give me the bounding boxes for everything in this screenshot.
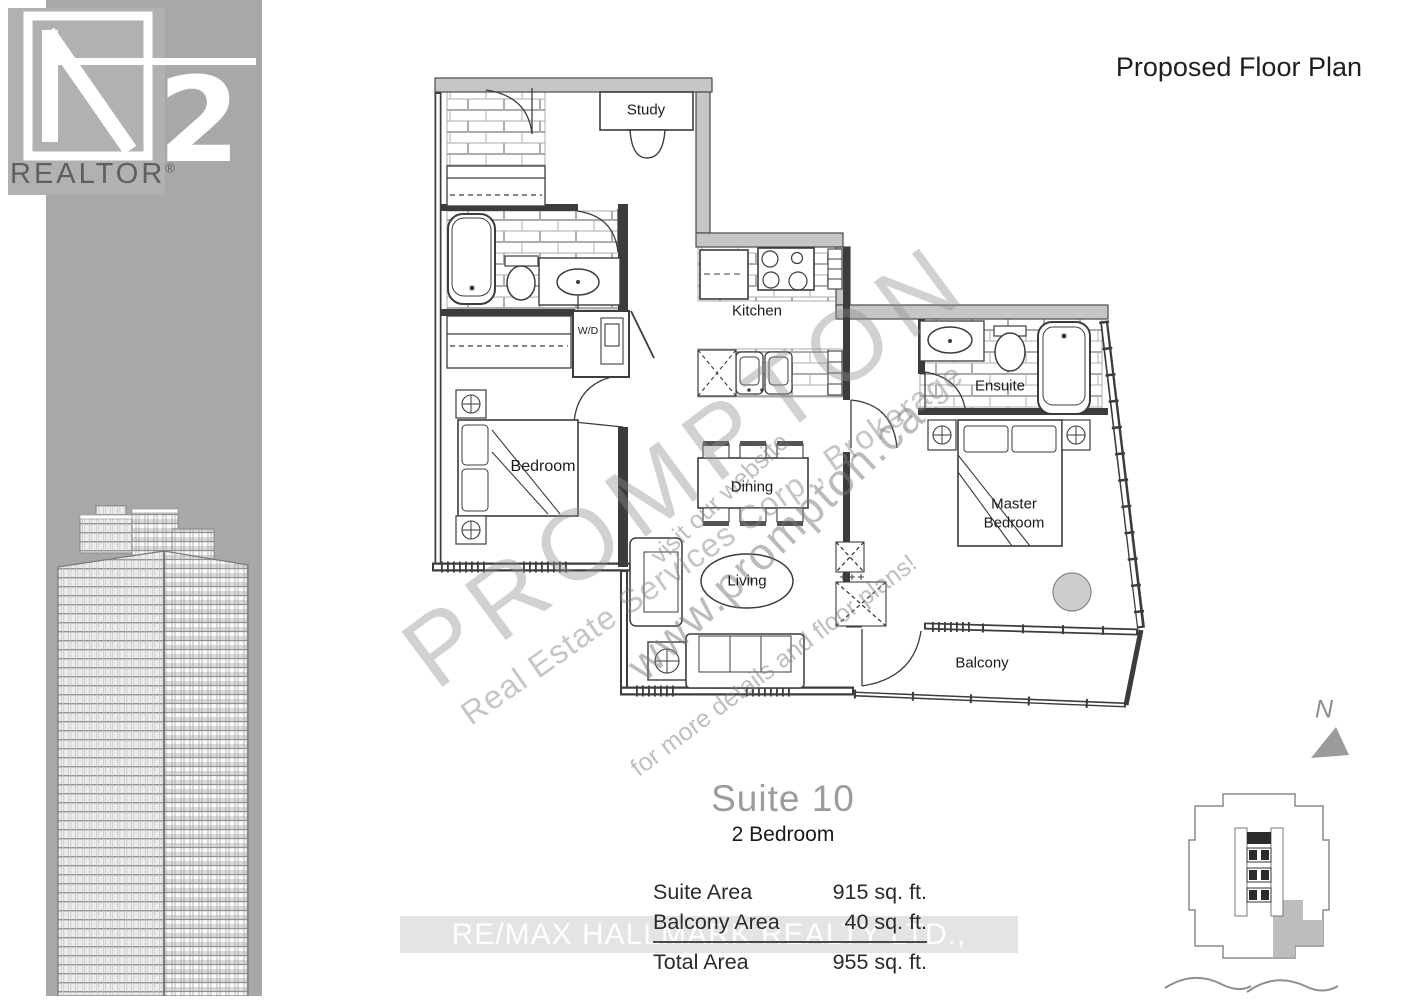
area-row-suite: Suite Area 915 sq. ft. <box>653 880 927 905</box>
room-label-kitchen: Kitchen <box>732 303 782 320</box>
ensuite-toilet <box>995 333 1025 371</box>
room-label-bedroom: Bedroom <box>511 458 576 476</box>
key-plan <box>1165 794 1338 992</box>
area-value: 40 sq. ft. <box>845 910 927 935</box>
floor-plan-page: { "header": { "title": "Proposed Floor P… <box>0 0 1407 996</box>
room-label-balcony: Balcony <box>955 655 1008 672</box>
area-label: Total Area <box>653 950 749 975</box>
north-arrow-icon <box>1311 727 1349 758</box>
water-waves <box>1165 978 1251 989</box>
room-label-living: Living <box>727 573 766 590</box>
north-label: N <box>1315 696 1333 725</box>
area-value: 915 sq. ft. <box>833 880 927 905</box>
room-label-wd: W/D <box>578 325 598 337</box>
area-row-balcony: Balcony Area 40 sq. ft. <box>653 910 927 935</box>
desk-chair <box>630 130 665 158</box>
stove <box>758 248 814 290</box>
room-label-master-bedroom: Master Bedroom <box>968 495 1060 533</box>
area-label: Suite Area <box>653 880 752 905</box>
area-row-total: Total Area 955 sq. ft. <box>653 950 927 975</box>
area-label: Balcony Area <box>653 910 780 935</box>
area-value: 955 sq. ft. <box>833 950 927 975</box>
room-label-dining: Dining <box>731 479 774 496</box>
suite-title: Suite 10 <box>711 778 855 820</box>
suite-subtitle: 2 Bedroom <box>732 823 835 847</box>
round-chair <box>1053 573 1091 611</box>
area-table-divider <box>653 941 927 943</box>
area-table: Suite Area 915 sq. ft. Balcony Area 40 s… <box>653 880 927 980</box>
room-label-study: Study <box>627 102 665 119</box>
room-label-ensuite: Ensuite <box>975 378 1025 395</box>
toilet <box>507 266 535 300</box>
toilet-tank <box>505 256 538 266</box>
